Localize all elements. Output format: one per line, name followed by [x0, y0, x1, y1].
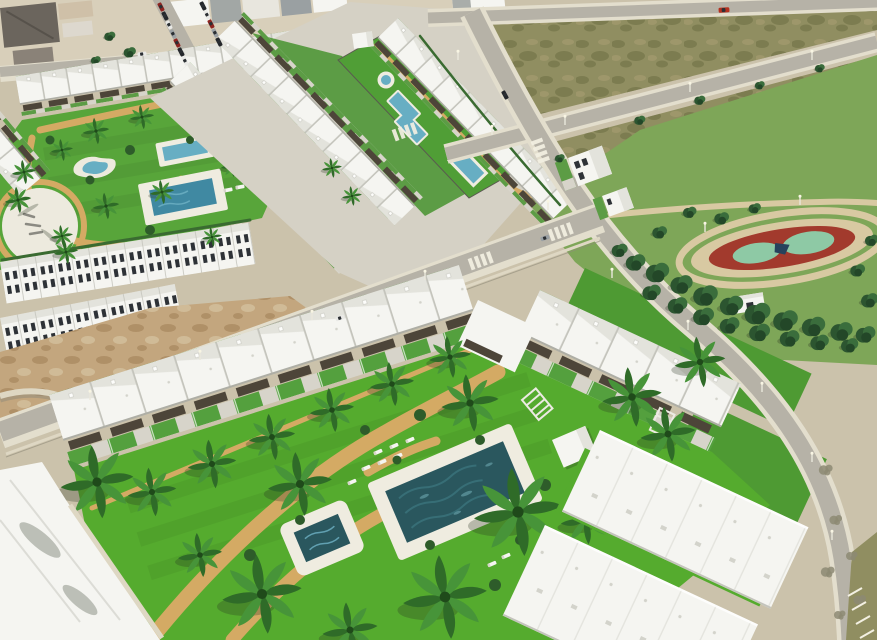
aerial-development-render: Aerial 3D render of a new-build Mediterr…	[0, 0, 877, 640]
round-fountain	[378, 72, 395, 89]
render-canvas: Aerial 3D render of a new-build Mediterr…	[0, 0, 877, 640]
pool-house-cube	[352, 31, 374, 49]
red-van	[718, 7, 729, 13]
